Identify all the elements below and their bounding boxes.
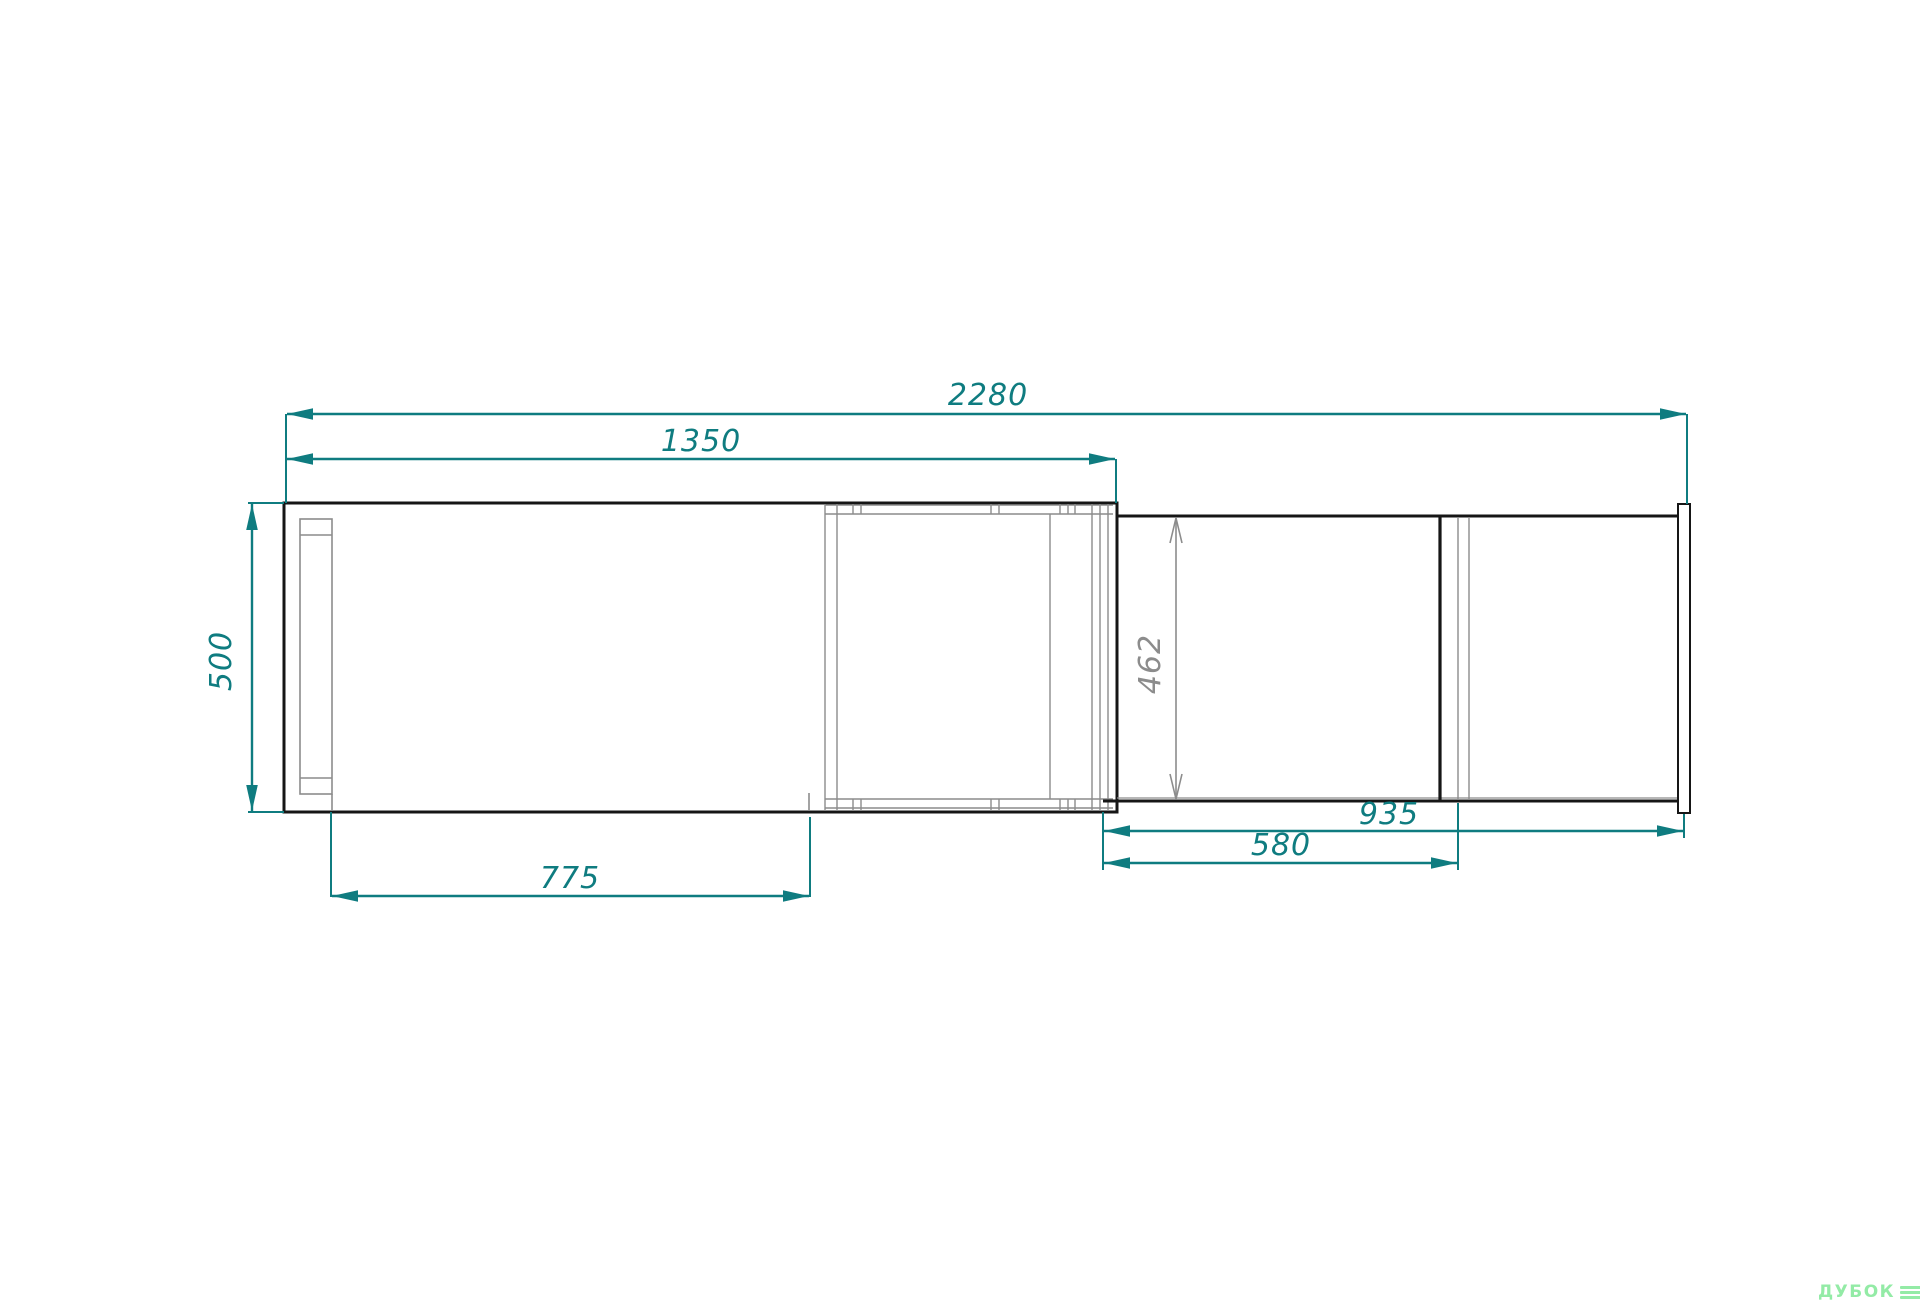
dimension-body-width: 1350	[287, 424, 1116, 503]
brand-logo: ДУБОК	[1818, 1284, 1920, 1301]
dim-label-1350: 1350	[661, 424, 741, 459]
dim-label-580: 580	[1251, 828, 1311, 863]
brand-logo-tagline-lines	[1900, 1286, 1920, 1299]
dim-label-775: 775	[540, 861, 600, 896]
dimension-body-depth: 500	[204, 503, 284, 812]
dimension-extension-span: 935	[1103, 797, 1684, 870]
dim-label-462: 462	[1133, 634, 1168, 694]
dim-label-935: 935	[1359, 797, 1419, 832]
brand-logo-text: ДУБОК	[1818, 1284, 1895, 1301]
extension-section	[1103, 516, 1678, 801]
dim-label-2280: 2280	[948, 378, 1028, 413]
tagline-line	[1900, 1286, 1920, 1289]
tagline-line	[1900, 1291, 1920, 1294]
dimension-extension-depth: 462	[1133, 518, 1176, 799]
dimension-left-span: 775	[331, 812, 810, 897]
main-body	[284, 503, 1117, 812]
end-panel	[1678, 504, 1690, 813]
dimension-overall-width: 2280	[286, 378, 1687, 504]
drawing-canvas: 2280 1350 500 775 935	[0, 0, 1920, 1314]
tagline-line	[1900, 1296, 1920, 1299]
dim-label-500: 500	[204, 631, 239, 691]
technical-drawing: 2280 1350 500 775 935	[0, 0, 1920, 1314]
